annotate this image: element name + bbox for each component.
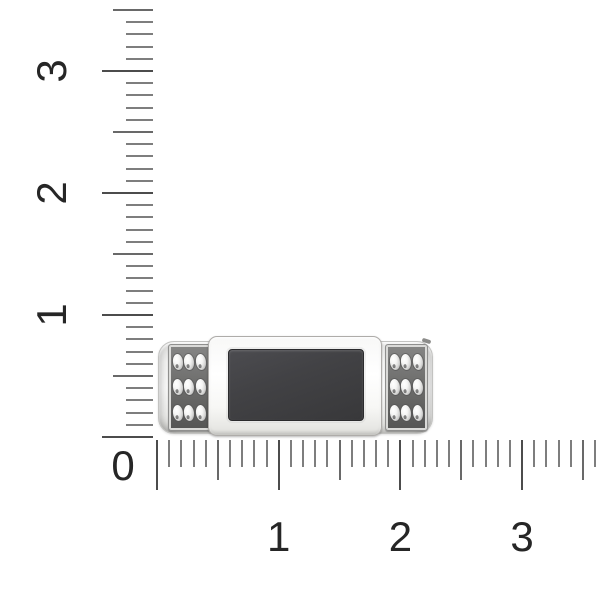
v-ruler-tick-major bbox=[102, 436, 153, 438]
v-ruler-tick-minor bbox=[126, 168, 153, 170]
h-ruler-tick-minor bbox=[436, 440, 438, 467]
v-ruler-tick-minor bbox=[126, 302, 153, 304]
diamond-gem bbox=[400, 404, 412, 421]
v-ruler-tick-half bbox=[113, 9, 153, 11]
h-ruler-label-1: 1 bbox=[267, 516, 290, 558]
h-ruler-tick-minor bbox=[363, 440, 365, 467]
h-ruler-tick-minor bbox=[448, 440, 450, 467]
diamond-gem bbox=[388, 404, 400, 421]
v-ruler-tick-minor bbox=[126, 241, 153, 243]
ring-product-image bbox=[158, 336, 434, 435]
v-ruler-tick-minor bbox=[126, 412, 153, 414]
v-ruler-tick-minor bbox=[126, 351, 153, 353]
h-ruler-tick-minor bbox=[314, 440, 316, 467]
v-ruler-tick-minor bbox=[126, 265, 153, 267]
h-ruler-label-2: 2 bbox=[389, 516, 412, 558]
v-ruler-tick-minor bbox=[126, 82, 153, 84]
diamond-gem bbox=[411, 378, 423, 395]
v-ruler-tick-minor bbox=[126, 46, 153, 48]
h-ruler-tick-minor bbox=[326, 440, 328, 467]
h-ruler-tick-major bbox=[278, 440, 280, 490]
h-ruler-tick-minor bbox=[253, 440, 255, 467]
h-ruler-tick-major bbox=[521, 440, 523, 490]
ring-onyx-stone bbox=[228, 349, 364, 421]
v-ruler-tick-minor bbox=[126, 290, 153, 292]
v-ruler-tick-half bbox=[113, 375, 153, 377]
diamond-gem bbox=[171, 378, 183, 395]
h-ruler-tick-major bbox=[399, 440, 401, 490]
v-ruler-tick-minor bbox=[126, 155, 153, 157]
diamond-gem bbox=[194, 404, 206, 421]
h-ruler-tick-minor bbox=[351, 440, 353, 467]
diamond-gem bbox=[194, 378, 206, 395]
v-ruler-tick-half bbox=[113, 253, 153, 255]
h-ruler-tick-minor bbox=[424, 440, 426, 467]
v-ruler-tick-minor bbox=[126, 180, 153, 182]
h-ruler-tick-minor bbox=[472, 440, 474, 467]
v-ruler-tick-minor bbox=[126, 326, 153, 328]
v-ruler-tick-minor bbox=[126, 204, 153, 206]
diamond-gem bbox=[171, 404, 183, 421]
h-ruler-tick-minor bbox=[229, 440, 231, 467]
h-ruler-tick-half bbox=[217, 440, 219, 480]
v-ruler-tick-minor bbox=[126, 229, 153, 231]
diamond-gem bbox=[183, 404, 195, 421]
diamond-gem bbox=[400, 353, 412, 370]
v-ruler-tick-minor bbox=[126, 363, 153, 365]
h-ruler-tick-minor bbox=[412, 440, 414, 467]
v-ruler-tick-minor bbox=[126, 424, 153, 426]
h-ruler-tick-half bbox=[582, 440, 584, 480]
h-ruler-label-3: 3 bbox=[510, 516, 533, 558]
h-ruler-tick-minor bbox=[570, 440, 572, 467]
v-ruler-tick-minor bbox=[126, 119, 153, 121]
h-ruler-tick-minor bbox=[545, 440, 547, 467]
diamond-gem bbox=[183, 353, 195, 370]
ruler-corner-label-0: 0 bbox=[111, 445, 134, 487]
diamond-gem bbox=[388, 353, 400, 370]
h-ruler-tick-minor bbox=[558, 440, 560, 467]
v-ruler-tick-half bbox=[113, 131, 153, 133]
h-ruler-tick-minor bbox=[509, 440, 511, 467]
ring-right-gem-panel bbox=[385, 344, 428, 431]
v-ruler-tick-major bbox=[102, 70, 153, 72]
h-ruler-tick-minor bbox=[180, 440, 182, 467]
v-ruler-tick-minor bbox=[126, 277, 153, 279]
h-ruler-tick-minor bbox=[193, 440, 195, 467]
v-ruler-tick-minor bbox=[126, 387, 153, 389]
diamond-gem bbox=[388, 378, 400, 395]
product-photo-canvas: 123 123 0 bbox=[0, 0, 600, 600]
diamond-gem bbox=[183, 378, 195, 395]
h-ruler-tick-minor bbox=[497, 440, 499, 467]
v-ruler-tick-minor bbox=[126, 338, 153, 340]
diamond-gem bbox=[400, 378, 412, 395]
h-ruler-tick-minor bbox=[290, 440, 292, 467]
v-ruler-tick-major bbox=[102, 314, 153, 316]
v-ruler-tick-minor bbox=[126, 399, 153, 401]
ring-left-gem-panel bbox=[168, 344, 211, 431]
v-ruler-tick-minor bbox=[126, 58, 153, 60]
v-ruler-label-2: 2 bbox=[31, 181, 73, 204]
h-ruler-tick-minor bbox=[241, 440, 243, 467]
h-ruler-tick-minor bbox=[266, 440, 268, 467]
h-ruler-tick-half bbox=[460, 440, 462, 480]
v-ruler-label-1: 1 bbox=[31, 303, 73, 326]
v-ruler-tick-minor bbox=[126, 94, 153, 96]
diamond-gem bbox=[171, 353, 183, 370]
v-ruler-tick-minor bbox=[126, 143, 153, 145]
h-ruler-tick-minor bbox=[594, 440, 596, 467]
v-ruler-tick-minor bbox=[126, 216, 153, 218]
v-ruler-tick-minor bbox=[126, 33, 153, 35]
diamond-gem bbox=[194, 353, 206, 370]
h-ruler-tick-half bbox=[339, 440, 341, 480]
h-ruler-tick-minor bbox=[168, 440, 170, 467]
h-ruler-tick-minor bbox=[533, 440, 535, 467]
h-ruler-tick-minor bbox=[375, 440, 377, 467]
v-ruler-tick-minor bbox=[126, 107, 153, 109]
h-ruler-tick-minor bbox=[387, 440, 389, 467]
h-ruler-tick-minor bbox=[485, 440, 487, 467]
v-ruler-tick-minor bbox=[126, 21, 153, 23]
v-ruler-label-3: 3 bbox=[31, 59, 73, 82]
v-ruler-tick-major bbox=[102, 192, 153, 194]
h-ruler-tick-minor bbox=[205, 440, 207, 467]
h-ruler-tick-major bbox=[156, 440, 158, 490]
diamond-gem bbox=[411, 404, 423, 421]
h-ruler-tick-minor bbox=[302, 440, 304, 467]
diamond-gem bbox=[411, 353, 423, 370]
